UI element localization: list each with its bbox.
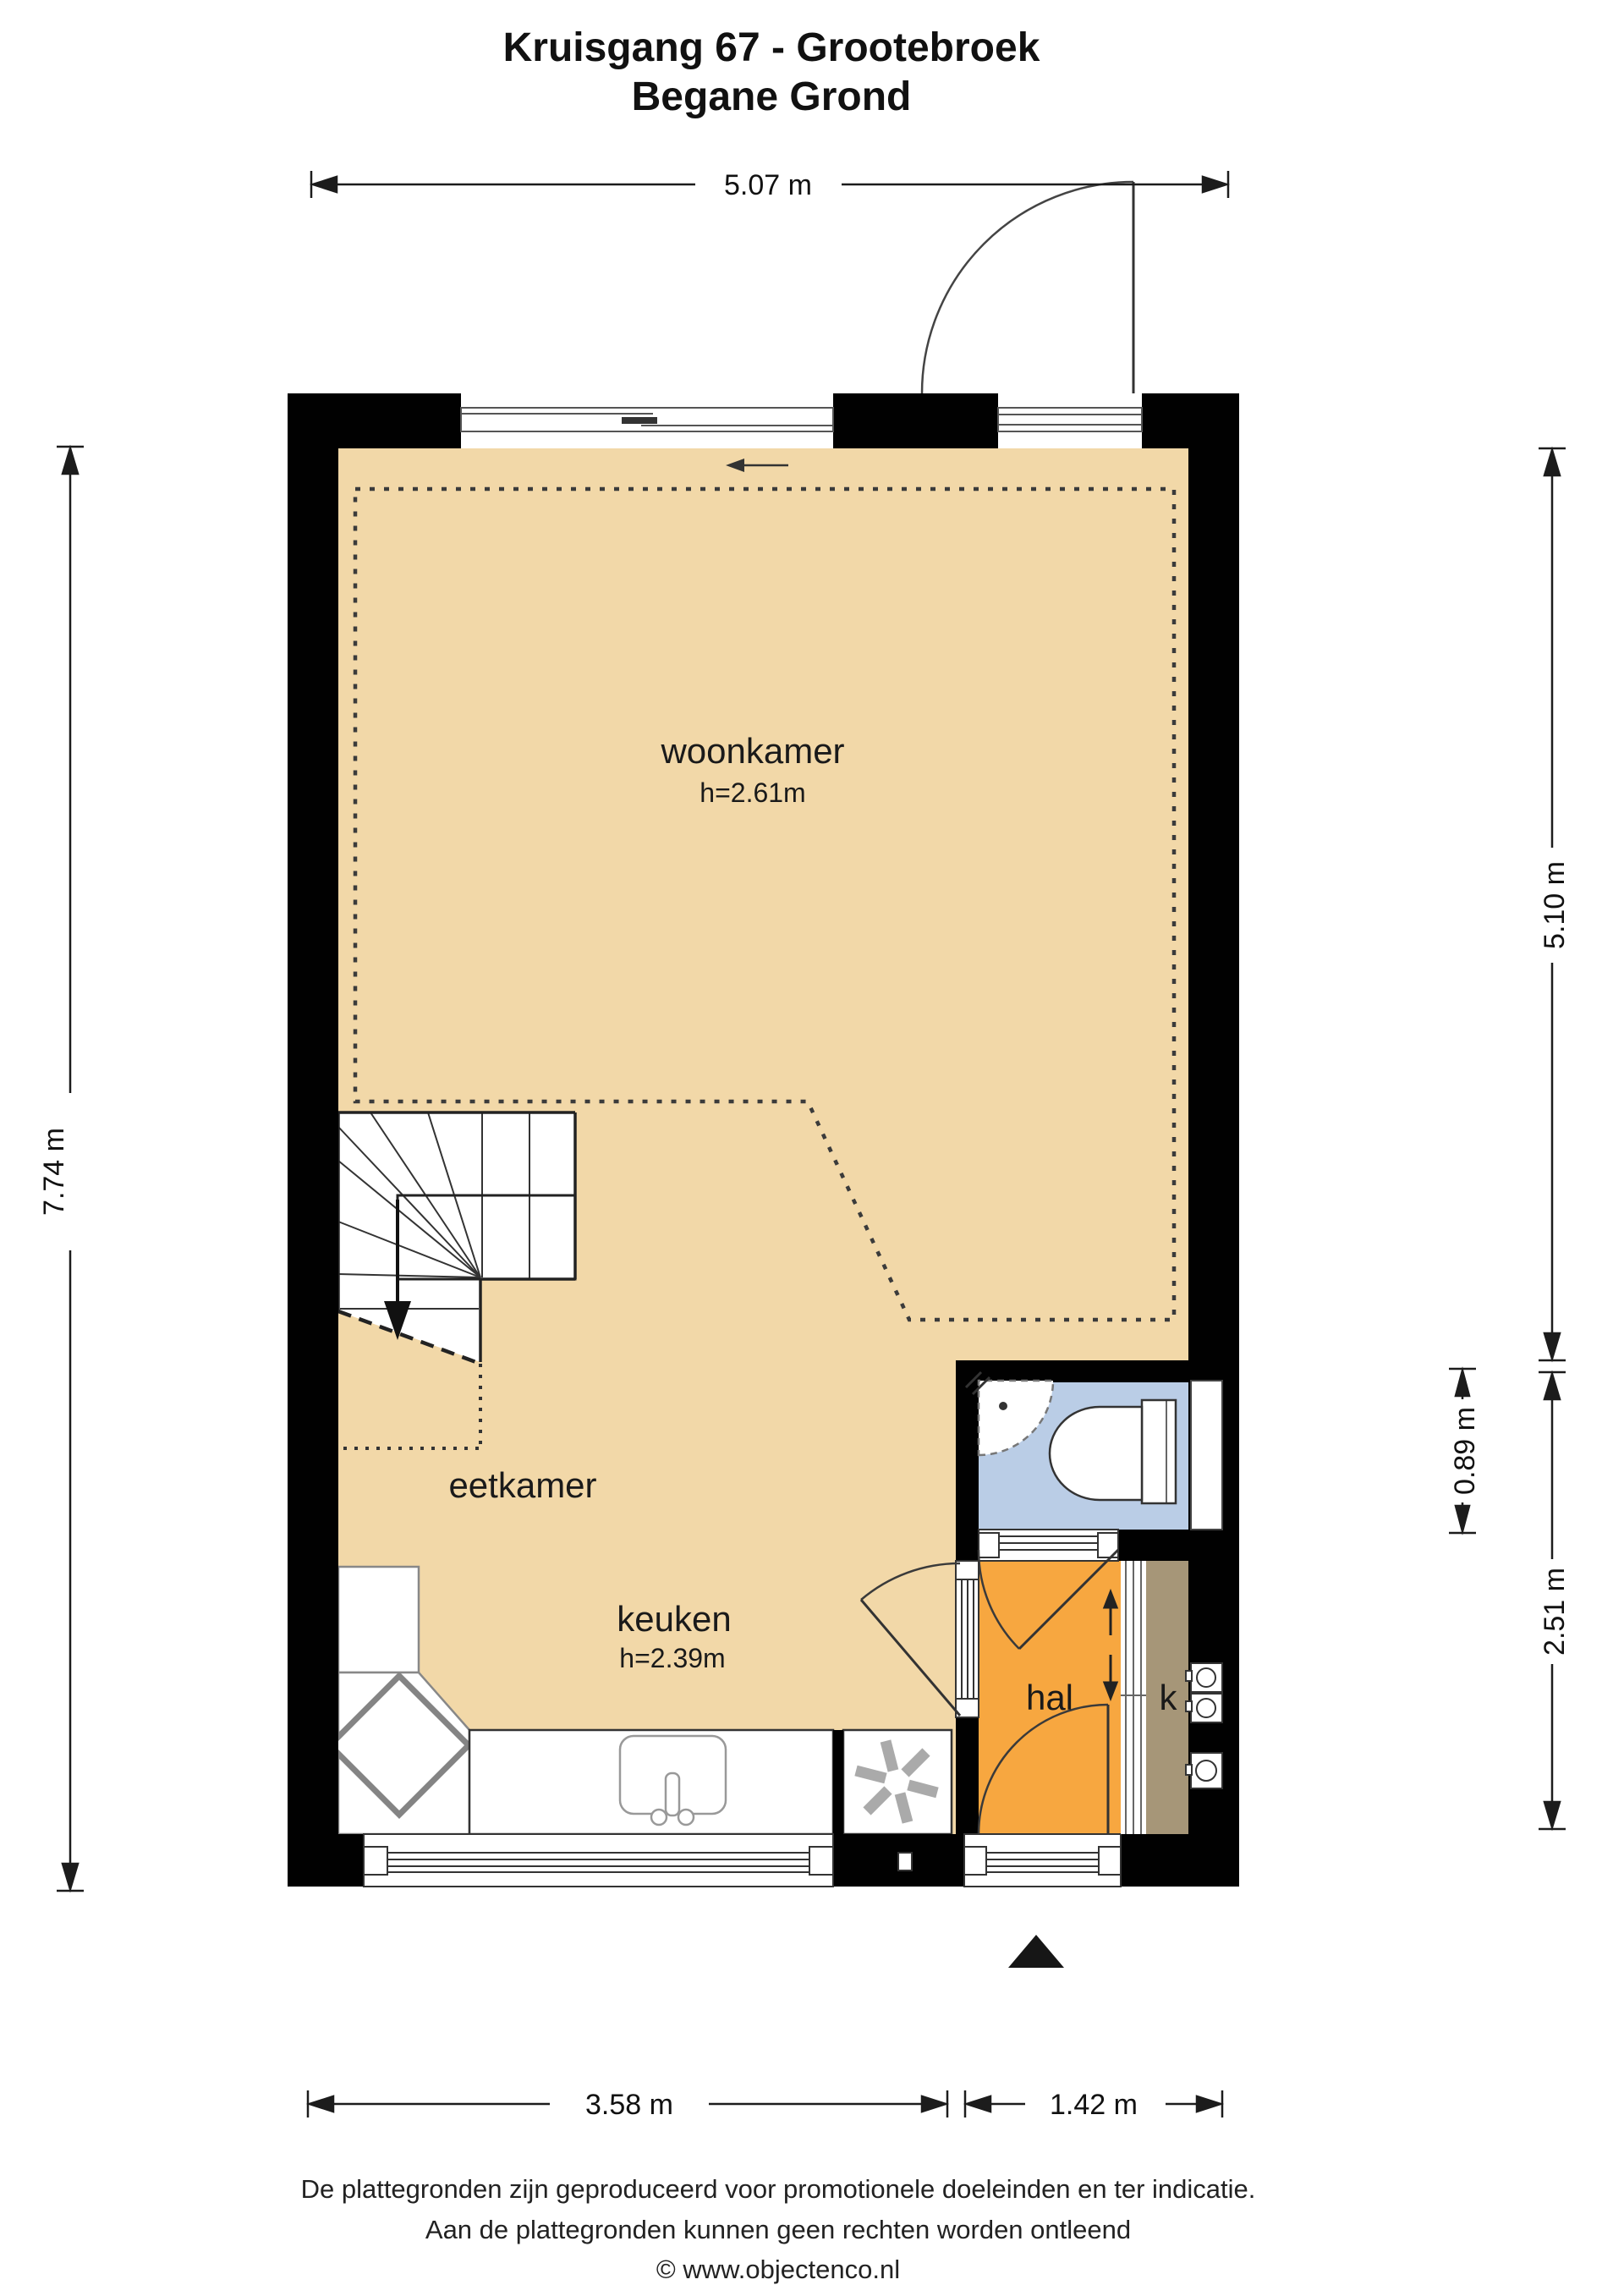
- dim-left-label: 7.74 m: [38, 1128, 70, 1216]
- toilet: [1050, 1400, 1176, 1503]
- floorplan-page: Kruisgang 67 - Grootebroek Begane Grond: [0, 0, 1624, 2296]
- wall-top-mid: [833, 393, 998, 448]
- bottom-wall-pipe-marker: [898, 1853, 912, 1870]
- dim-right-bath-label: 0.89 m: [1449, 1407, 1481, 1495]
- boiler-box: [843, 1730, 952, 1834]
- wall-bath-top: [956, 1360, 1239, 1382]
- top-door-swing: [922, 182, 1133, 393]
- dim-top-label: 5.07 m: [724, 169, 812, 201]
- bathroom-duct: [1191, 1381, 1222, 1530]
- dim-right-upper-label: 5.10 m: [1539, 861, 1571, 949]
- wall-bath-bottom: [1118, 1530, 1239, 1561]
- wall-left: [288, 393, 338, 1887]
- dim-right-lower-label: 2.51 m: [1539, 1568, 1571, 1656]
- label-woonkamer-height: h=2.61m: [700, 777, 805, 808]
- dim-bottom-left-label: 3.58 m: [585, 2089, 673, 2121]
- floorplan-drawing: Kruisgang 67 - Grootebroek Begane Grond: [0, 0, 1624, 2296]
- disclaimer-line2: Aan de plattegronden kunnen geen rechten…: [425, 2215, 1131, 2244]
- title-address: Kruisgang 67 - Grootebroek: [503, 25, 1040, 70]
- disclaimer: De plattegronden zijn geproduceerd voor …: [301, 2174, 1256, 2284]
- label-keuken: keuken: [617, 1599, 731, 1639]
- entrance-triangle-icon: [1008, 1935, 1064, 1968]
- label-hal: hal: [1026, 1678, 1073, 1717]
- disclaimer-line1: De plattegronden zijn geproduceerd voor …: [301, 2174, 1256, 2204]
- wall-hal-left: [956, 1717, 979, 1834]
- label-woonkamer: woonkamer: [660, 731, 844, 771]
- label-kast: k: [1160, 1678, 1178, 1717]
- dim-bottom-right-label: 1.42 m: [1050, 2089, 1138, 2121]
- wall-bottom-left: [288, 1834, 364, 1887]
- label-eetkamer: eetkamer: [448, 1465, 596, 1505]
- wall-bottom-right: [1121, 1834, 1239, 1887]
- kitchen-sink: [620, 1736, 726, 1825]
- wall-counter-divider: [833, 1730, 843, 1834]
- kitchen-window: [364, 1834, 833, 1887]
- kitchen-wall-cabinet: [338, 1567, 419, 1673]
- disclaimer-copyright: © www.objectenco.nl: [656, 2255, 900, 2284]
- label-keuken-height: h=2.39m: [619, 1643, 725, 1673]
- title-floor: Begane Grond: [632, 74, 912, 119]
- hal-kast-partition: [1121, 1561, 1146, 1834]
- plan-title: Kruisgang 67 - Grootebroek Begane Grond: [503, 25, 1040, 119]
